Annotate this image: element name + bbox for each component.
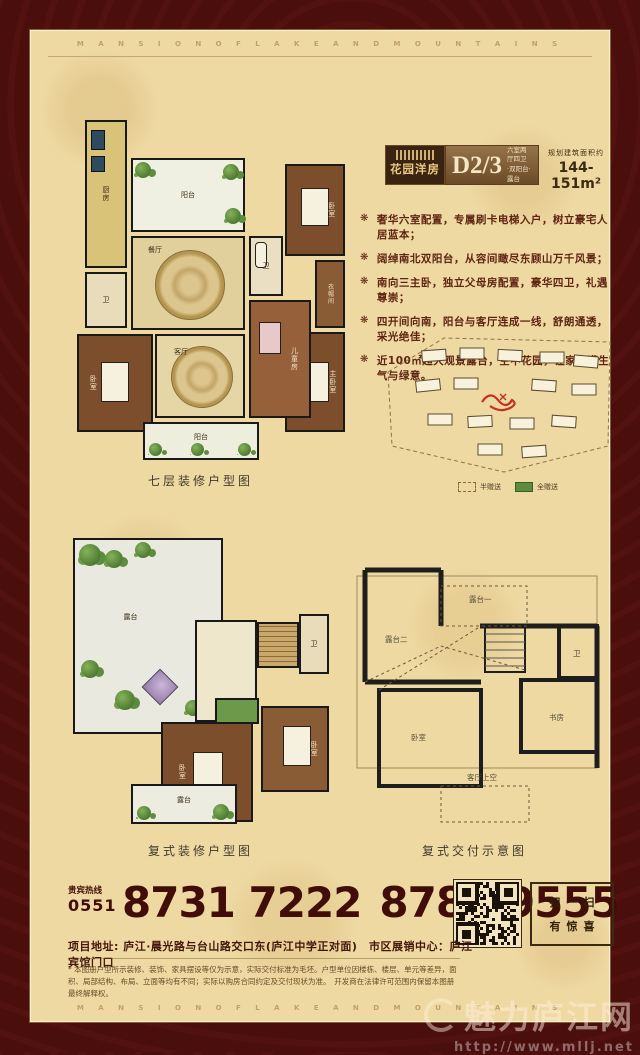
flower-bullet-icon: ❋ bbox=[360, 314, 369, 327]
legend-item: 全赠送 bbox=[515, 482, 558, 492]
top-banner-text: M A N S I O N O F L A K E A N D M O U N … bbox=[30, 40, 610, 48]
unit-area-box: 规划建筑面积约 144-151m² bbox=[542, 148, 610, 192]
caption-duplex: 复式装修户型图 bbox=[148, 842, 253, 859]
watermark-url: http://www.mllj.net bbox=[424, 1040, 634, 1055]
floorplan-duplex: 露台 卫 卧室 卧室 露台 bbox=[65, 530, 335, 830]
poster-panel: M A N S I O N O F L A K E A N D M O U N … bbox=[30, 30, 610, 1022]
plant-icon bbox=[213, 804, 229, 820]
room-bedroom-ne: 卧室 bbox=[285, 164, 345, 256]
unit-model-band: D2/3 六室两厅四卫 ·双阳台·露台 bbox=[446, 146, 538, 184]
hotline-label: 贵宾热线 bbox=[68, 884, 117, 896]
site-plan-sketch bbox=[382, 328, 617, 478]
scan-hint-box: 扫一扫 有惊喜 bbox=[530, 882, 614, 946]
bed-icon bbox=[301, 188, 329, 226]
lightwell-green bbox=[215, 698, 259, 724]
flower-bullet-icon: ❋ bbox=[360, 275, 369, 288]
delivery-label: 书房 bbox=[549, 712, 564, 722]
selling-point: ❋阔绰南北双阳台，从容间瞰尽东顾山万千风景； bbox=[360, 251, 612, 266]
project-name-box: 花园洋房 bbox=[386, 146, 444, 184]
unit-layout: 六室两厅四卫 ·双阳台·露台 bbox=[507, 146, 532, 185]
bed-icon bbox=[259, 322, 281, 354]
delivery-label: 卧室 bbox=[411, 732, 426, 742]
room-duplex-bedroom-right: 卧室 bbox=[261, 706, 329, 792]
plant-icon bbox=[238, 443, 251, 456]
flower-bullet-icon: ❋ bbox=[360, 212, 369, 225]
area-value: 144-151m² bbox=[542, 160, 610, 192]
unit-model: D2/3 bbox=[452, 153, 502, 178]
area-label: 规划建筑面积约 bbox=[542, 148, 610, 158]
plant-icon bbox=[135, 162, 151, 178]
scan-line2: 有惊喜 bbox=[544, 918, 601, 934]
plant-icon bbox=[191, 443, 204, 456]
room-duplex-terrace-south: 露台 bbox=[131, 784, 237, 824]
selling-point: ❋南向三主卧，独立父母房配置，豪华四卫，礼遇尊崇； bbox=[360, 275, 612, 305]
sink-icon bbox=[91, 156, 105, 172]
delivery-label: 卫 bbox=[573, 649, 581, 658]
unit-layout-line2: ·双阳台·露台 bbox=[507, 165, 532, 185]
legend-item: 半赠送 bbox=[458, 482, 501, 492]
room-duplex-bath: 卫 bbox=[299, 614, 329, 674]
tree-icon bbox=[135, 542, 151, 558]
plant-icon bbox=[137, 806, 151, 820]
tree-icon bbox=[115, 690, 135, 710]
tree-icon bbox=[105, 550, 123, 568]
siteplan-legend: 半赠送 全赠送 bbox=[458, 482, 558, 492]
phone-number-1: 8731 7222 bbox=[122, 878, 361, 927]
hotline-area-code: 0551 bbox=[68, 896, 117, 915]
unit-layout-line1: 六室两厅四卫 bbox=[507, 146, 532, 166]
dining-rug bbox=[155, 250, 225, 320]
hotline-block: 贵宾热线 0551 bbox=[68, 884, 117, 915]
room-bath-center: 卫 bbox=[249, 236, 283, 296]
bed-icon bbox=[283, 726, 311, 766]
disclaimer-text: * 本图册户型所示装修、装饰、家具摆设等仅为示意，实际交付标准为毛坯。户型单位因… bbox=[68, 958, 460, 1000]
plant-icon bbox=[149, 443, 162, 456]
delivery-label: 客厅上空 bbox=[467, 772, 497, 782]
product-name: 花园洋房 bbox=[386, 161, 444, 177]
top-divider bbox=[48, 56, 592, 57]
room-balcony-south: 阳台 bbox=[143, 422, 259, 460]
room-kitchen: 厨房 bbox=[85, 120, 127, 268]
plant-icon bbox=[223, 164, 239, 180]
tree-icon bbox=[79, 544, 101, 566]
floorplan-level7: 厨房 阳台 餐厅 卫 卧室 衣帽间 主卧室 bbox=[65, 108, 345, 460]
room-living: 客厅 bbox=[155, 334, 245, 418]
plant-icon bbox=[225, 208, 241, 224]
stove-icon bbox=[91, 130, 105, 150]
caption-delivery: 复式交付示意图 bbox=[422, 842, 527, 859]
room-wardrobe: 衣帽间 bbox=[315, 260, 345, 328]
green-swatch-icon bbox=[515, 482, 533, 492]
room-bath-west: 卫 bbox=[85, 272, 127, 328]
delivery-label: 露台二 bbox=[385, 634, 408, 644]
flower-bullet-icon: ❋ bbox=[360, 251, 369, 264]
scan-line1: 扫一扫 bbox=[544, 894, 601, 910]
stairs-icon bbox=[257, 622, 299, 668]
tree-icon bbox=[81, 660, 99, 678]
name-box-ornament bbox=[396, 150, 434, 160]
location-scribble-icon bbox=[482, 395, 515, 410]
room-children: 儿童房 bbox=[249, 300, 311, 418]
dashed-swatch-icon bbox=[458, 482, 476, 492]
selling-point: ❋奢华六室配置，专属刷卡电梯入户，树立豪宅人居蓝本； bbox=[360, 212, 612, 242]
gazebo-icon bbox=[142, 669, 179, 706]
caption-level7: 七层装修户型图 bbox=[148, 472, 253, 489]
room-dining: 餐厅 bbox=[131, 236, 245, 330]
bed-icon bbox=[101, 362, 129, 402]
flower-bullet-icon: ❋ bbox=[360, 353, 369, 366]
bottom-banner-text: M A N S I O N O F L A K E A N D M O U N … bbox=[30, 1004, 610, 1012]
delivery-label: 露台一 bbox=[469, 594, 492, 604]
room-balcony-north: 阳台 bbox=[131, 158, 245, 232]
room-bedroom-sw: 卧室 bbox=[77, 334, 153, 432]
qr-code bbox=[454, 880, 521, 947]
delivery-diagram: 露台二 露台一 客厅上空 卧室 书房 卫 bbox=[345, 530, 620, 830]
